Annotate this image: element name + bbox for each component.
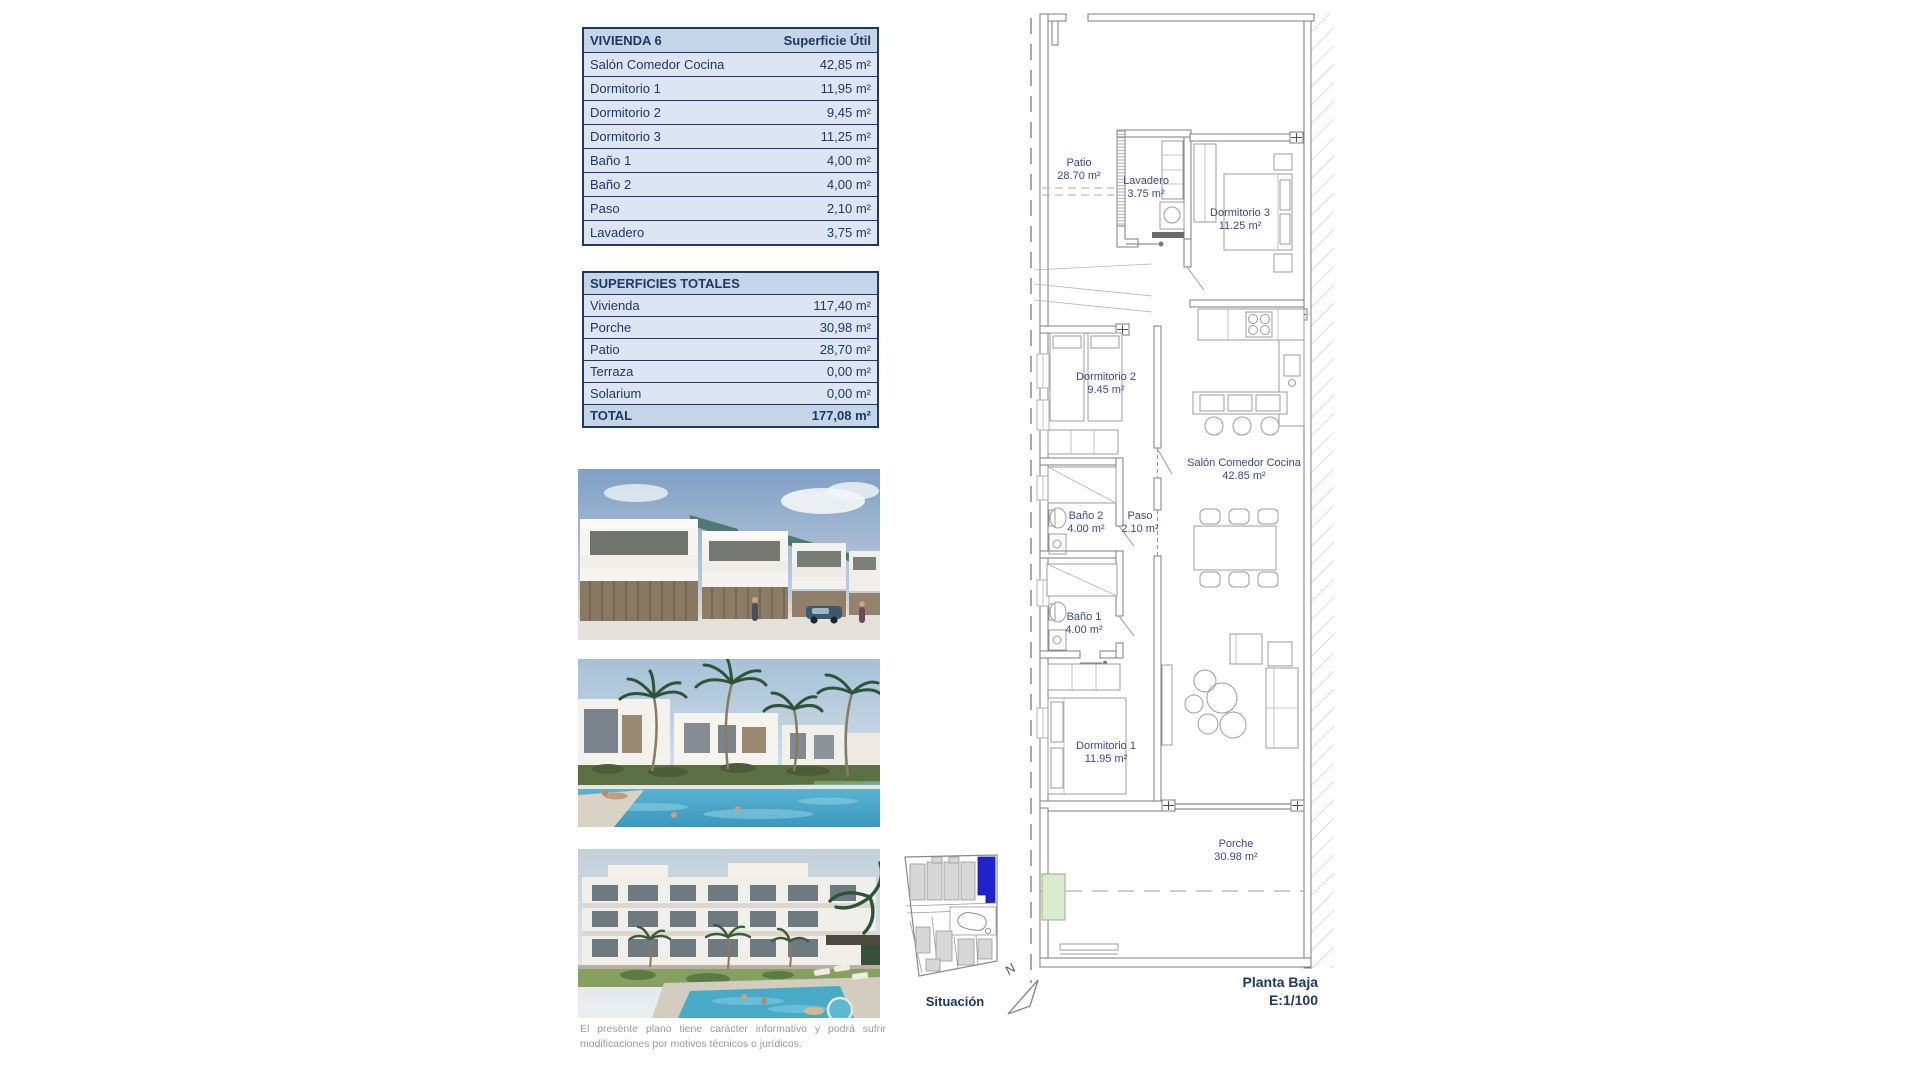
room-area: 11.95 m² (1085, 753, 1128, 765)
kitchen-fixtures (1193, 309, 1304, 435)
room-label: Baño 2 (1069, 510, 1104, 522)
vivienda-table-title: VIVIENDA 6 (590, 33, 662, 48)
site-plan-caption: Situación (900, 994, 1010, 1009)
townhouse-block-2 (702, 531, 788, 619)
pool-render-illustration (578, 659, 880, 827)
room-area: 42.85 m² (1222, 470, 1266, 482)
townhouse-block-1 (580, 519, 698, 621)
vivienda-table-header: VIVIENDA 6 Superficie Útil (584, 29, 877, 52)
coffee-table (1207, 683, 1237, 713)
vivienda-table: VIVIENDA 6 Superficie Útil Salón Comedor… (582, 27, 879, 246)
row-value: 4,00 m² (827, 153, 871, 168)
street-render-illustration (578, 469, 880, 640)
room-label: Dormitorio 3 (1210, 207, 1270, 219)
row-label: Baño 2 (590, 177, 631, 192)
total-value: 177,08 m² (812, 408, 871, 423)
plan-sheet: VIVIENDA 6 Superficie Útil Salón Comedor… (0, 0, 1920, 1080)
room-label: Paso (1127, 510, 1152, 522)
party-wall-hatch (1311, 14, 1334, 968)
spa-pool (828, 998, 852, 1018)
table-row: Terraza0,00 m² (584, 360, 877, 382)
wardrobe (1048, 430, 1118, 454)
plan-title: Planta Baja (1140, 974, 1318, 992)
row-value: 0,00 m² (827, 364, 871, 379)
bar-stool (1261, 417, 1279, 435)
kitchen-counter (1198, 309, 1304, 340)
row-value: 28,70 m² (820, 342, 871, 357)
table-row: Lavadero3,75 m² (584, 220, 877, 244)
dining-set (1194, 509, 1278, 587)
living-room-furniture (1162, 634, 1298, 748)
table-row: Baño 24,00 m² (584, 172, 877, 196)
row-value: 11,95 m² (821, 81, 871, 96)
row-label: Dormitorio 3 (590, 129, 661, 144)
step (1060, 944, 1118, 950)
armchair (1230, 634, 1262, 664)
room-label: Salón Comedor Cocina (1187, 457, 1302, 469)
pergola (826, 935, 880, 945)
location-mini-map (898, 851, 1002, 978)
table-row: Dormitorio 29,45 m² (584, 100, 877, 124)
row-value: 0,00 m² (827, 386, 871, 401)
row-label: Lavadero (590, 225, 644, 240)
room-label: Patio (1066, 157, 1091, 169)
room-area: 3.75 m² (1127, 188, 1165, 200)
table-row: Patio28,70 m² (584, 338, 877, 360)
bathroom1-fixtures (1047, 564, 1117, 650)
row-label: Salón Comedor Cocina (590, 57, 724, 72)
vivienda-table-col-header: Superficie Útil (784, 33, 871, 48)
table-row: Dormitorio 311,25 m² (584, 124, 877, 148)
planter (1042, 874, 1065, 920)
bar-stool (1233, 417, 1251, 435)
render-photo-pool (578, 659, 880, 827)
render-photo-complex (578, 849, 880, 1018)
totales-table-header: SUPERFICIES TOTALES (584, 273, 877, 294)
row-value: 30,98 m² (820, 320, 871, 335)
plan-footer: Planta Baja E:1/100 (1140, 974, 1318, 1009)
totales-table-title: SUPERFICIES TOTALES (590, 276, 740, 291)
north-label: N (1002, 960, 1019, 978)
table-row: Salón Comedor Cocina42,85 m² (584, 52, 877, 76)
row-label: Terraza (590, 364, 633, 379)
room-label: Dormitorio 1 (1076, 740, 1136, 752)
table-row: Vivienda117,40 m² (584, 294, 877, 316)
total-row: TOTAL177,08 m² (584, 404, 877, 426)
table-row: Dormitorio 111,95 m² (584, 76, 877, 100)
room-labels: Patio 28.70 m² Lavadero 3.75 m² Dormitor… (1057, 157, 1301, 863)
table-row: Porche30,98 m² (584, 316, 877, 338)
row-value: 42,85 m² (820, 57, 871, 72)
nightstand (1274, 254, 1292, 272)
row-value: 117,40 m² (813, 298, 871, 313)
row-label: Dormitorio 2 (590, 105, 661, 120)
row-value: 4,00 m² (827, 177, 871, 192)
toilet (1050, 508, 1066, 528)
row-label: Baño 1 (590, 153, 631, 168)
row-label: Dormitorio 1 (590, 81, 661, 96)
row-label: Patio (590, 342, 620, 357)
floor-plan-drawing: Patio 28.70 m² Lavadero 3.75 m² Dormitor… (1022, 8, 1344, 1013)
room-area: 4.00 m² (1067, 523, 1105, 535)
townhouse-block-3 (792, 543, 846, 617)
apartment-building (582, 863, 880, 973)
row-value: 2,10 m² (827, 201, 871, 216)
table-row: Baño 14,00 m² (584, 148, 877, 172)
room-area: 30.98 m² (1214, 851, 1258, 863)
swimmer (671, 812, 677, 818)
room-area: 9.45 m² (1087, 384, 1125, 396)
disclaimer-text: El presente plano tiene carácter informa… (580, 1022, 886, 1051)
tv-unit (1162, 665, 1172, 745)
dining-table (1194, 526, 1276, 570)
row-value: 11,25 m² (821, 129, 871, 144)
room-area: 4.00 m² (1065, 624, 1103, 636)
row-value: 9,45 m² (827, 105, 871, 120)
table-row: Paso2,10 m² (584, 196, 877, 220)
washbasin (1049, 630, 1066, 650)
wardrobe (1048, 664, 1120, 690)
room-label: Dormitorio 2 (1076, 371, 1136, 383)
bar-stool (1205, 417, 1223, 435)
plan-scale: E:1/100 (1140, 992, 1318, 1010)
toilet (1050, 602, 1066, 622)
row-label: Porche (590, 320, 631, 335)
complex-render-illustration (578, 849, 880, 1018)
bedroom1-furniture (1048, 664, 1126, 794)
table-row: Solarium0,00 m² (584, 382, 877, 404)
swimmer (735, 806, 741, 812)
room-area: 2.10 m² (1121, 523, 1159, 535)
room-area: 11.25 m² (1219, 220, 1262, 232)
room-label: Porche (1219, 838, 1254, 850)
room-label: Lavadero (1123, 175, 1169, 187)
porch-details (1040, 874, 1304, 954)
row-label: Paso (590, 201, 620, 216)
render-photo-street (578, 469, 880, 640)
common-area (950, 907, 996, 935)
armchair (1268, 642, 1292, 666)
row-label: Solarium (590, 386, 641, 401)
threshold (1152, 232, 1184, 238)
nightstand (1274, 154, 1292, 170)
room-area: 28.70 m² (1057, 170, 1101, 182)
townhouse-block-4 (849, 551, 880, 615)
row-value: 3,75 m² (827, 225, 871, 240)
room-label: Baño 1 (1067, 611, 1102, 623)
totales-table: SUPERFICIES TOTALES Vivienda117,40 m² Po… (582, 271, 879, 428)
total-label: TOTAL (590, 408, 632, 423)
row-label: Vivienda (590, 298, 640, 313)
